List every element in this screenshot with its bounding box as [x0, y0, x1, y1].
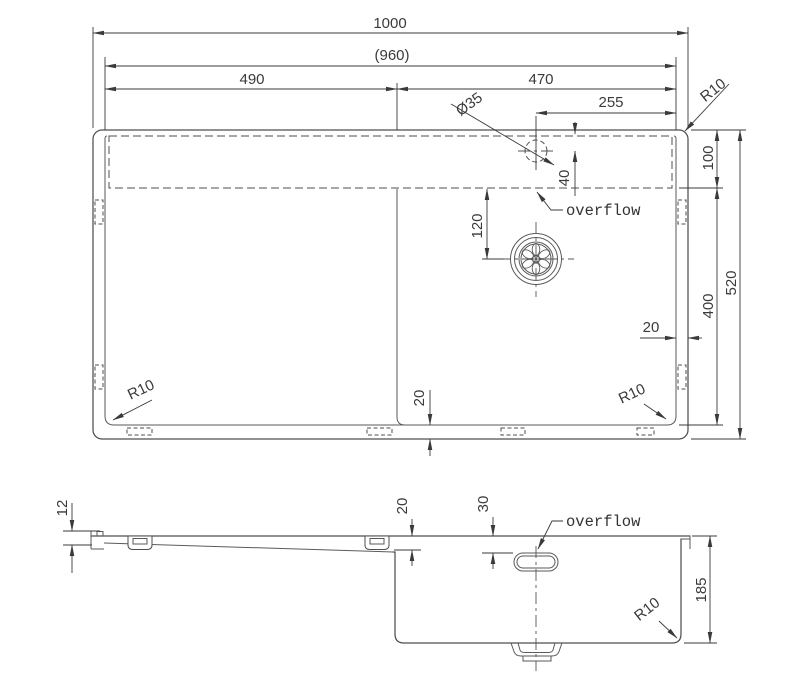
dim-label: 255	[598, 94, 623, 111]
sink-inner-rim	[105, 136, 676, 425]
dim-ledge-depth: 100	[700, 130, 717, 188]
dim-label: 520	[723, 270, 740, 295]
dim-label: (960)	[374, 47, 409, 64]
dim-rim-gap-bottom: 20	[411, 390, 430, 456]
overflow-callout-plan: overflow	[537, 192, 641, 220]
dim-rim-gap-right: 20	[640, 319, 702, 338]
dim-label: R10	[616, 380, 648, 407]
dim-bowl-depth-side: 185	[693, 536, 710, 643]
dim-rim-height: 12	[54, 500, 72, 573]
dim-bowl-section-width: 470	[397, 71, 676, 89]
dim-tap-from-top: 40	[556, 122, 575, 196]
dim-label: 100	[700, 145, 717, 170]
top-view: 1000 (960) 490 470 255 Ø35 40	[93, 15, 746, 456]
dim-label: 40	[556, 170, 573, 187]
dim-overflow-from-top: 30	[475, 496, 493, 569]
sink-technical-drawing: 1000 (960) 490 470 255 Ø35 40	[0, 0, 800, 687]
radius-bottom-side: R10	[631, 594, 677, 638]
dim-label: 490	[239, 71, 264, 88]
dim-label: 1000	[373, 15, 406, 32]
extension-lines-side-view	[63, 531, 717, 643]
dim-label: 20	[394, 498, 411, 515]
dim-label: 20	[643, 319, 660, 336]
dim-rim-width: (960)	[105, 47, 676, 66]
overflow-label: overflow	[566, 513, 641, 531]
technical-drawing-page: 1000 (960) 490 470 255 Ø35 40	[0, 0, 800, 687]
dim-drainboard-width: 490	[105, 71, 397, 89]
dim-tap-diameter: Ø35	[451, 89, 554, 165]
sink-outer-edge	[93, 130, 688, 439]
dim-label: 185	[693, 577, 710, 602]
dim-tap-offset: 255	[536, 94, 676, 113]
mounting-clips	[95, 200, 686, 435]
dim-board-drop: 20	[394, 498, 412, 566]
right-rim-edge	[681, 536, 690, 549]
bowl-profile	[393, 539, 681, 643]
dim-overall-width: 1000	[93, 15, 688, 33]
dim-label: 20	[411, 390, 428, 407]
bowl-divider-wall	[397, 189, 405, 425]
dim-drain-from-ledge: 120	[469, 189, 487, 259]
dim-label: R10	[125, 376, 157, 403]
dim-label: R10	[631, 594, 663, 624]
tap-hole	[518, 140, 556, 162]
side-view: 12 20 30 overflow 185 R10	[54, 496, 717, 671]
overflow-label: overflow	[566, 202, 641, 220]
drain-outlet-profile	[511, 643, 562, 661]
radius-top-right: R10	[685, 75, 729, 131]
radius-bottom-right: R10	[616, 380, 666, 419]
dim-bowl-depth-plan: 400	[700, 188, 717, 425]
dim-label: 120	[469, 213, 486, 238]
overflow-channel-hidden	[109, 136, 672, 188]
dim-label: 30	[475, 496, 492, 513]
dim-label: 400	[700, 293, 717, 318]
dim-label: 470	[528, 71, 553, 88]
radius-bottom-left: R10	[113, 376, 157, 420]
dim-label: R10	[697, 75, 729, 105]
dim-label: 12	[54, 500, 71, 517]
drain-strainer	[499, 222, 574, 297]
dim-overall-depth: 520	[723, 130, 740, 439]
overflow-callout-side: overflow	[538, 513, 641, 549]
